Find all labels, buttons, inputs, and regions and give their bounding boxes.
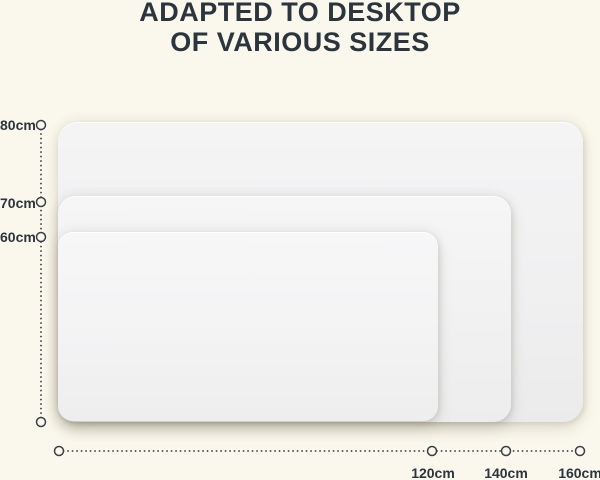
title-line-1: ADAPTED TO DESKTOP	[0, 0, 600, 27]
width-node-120cm	[428, 447, 437, 456]
height-node-base	[37, 418, 46, 427]
width-axis-nodes	[55, 447, 585, 456]
width-node-160cm	[576, 447, 585, 456]
desk-mat-size-infographic: ADAPTED TO DESKTOP OF VARIOUS SIZES 80c	[0, 0, 600, 480]
width-node-base	[55, 447, 64, 456]
height-node-80cm	[37, 121, 46, 130]
width-label-140cm: 140cm	[474, 465, 538, 480]
height-label-70cm: 70cm	[0, 195, 34, 211]
height-label-80cm: 80cm	[0, 117, 34, 133]
height-axis-nodes	[37, 121, 46, 427]
height-node-70cm	[37, 198, 46, 207]
desk-mat-120x60	[58, 232, 438, 421]
title-line-2: OF VARIOUS SIZES	[0, 27, 600, 57]
page-title: ADAPTED TO DESKTOP OF VARIOUS SIZES	[0, 0, 600, 57]
height-node-60cm	[37, 233, 46, 242]
width-label-120cm: 120cm	[401, 465, 465, 480]
width-label-160cm: 160cm	[548, 465, 600, 480]
height-label-60cm: 60cm	[0, 229, 34, 245]
width-node-140cm	[502, 447, 511, 456]
